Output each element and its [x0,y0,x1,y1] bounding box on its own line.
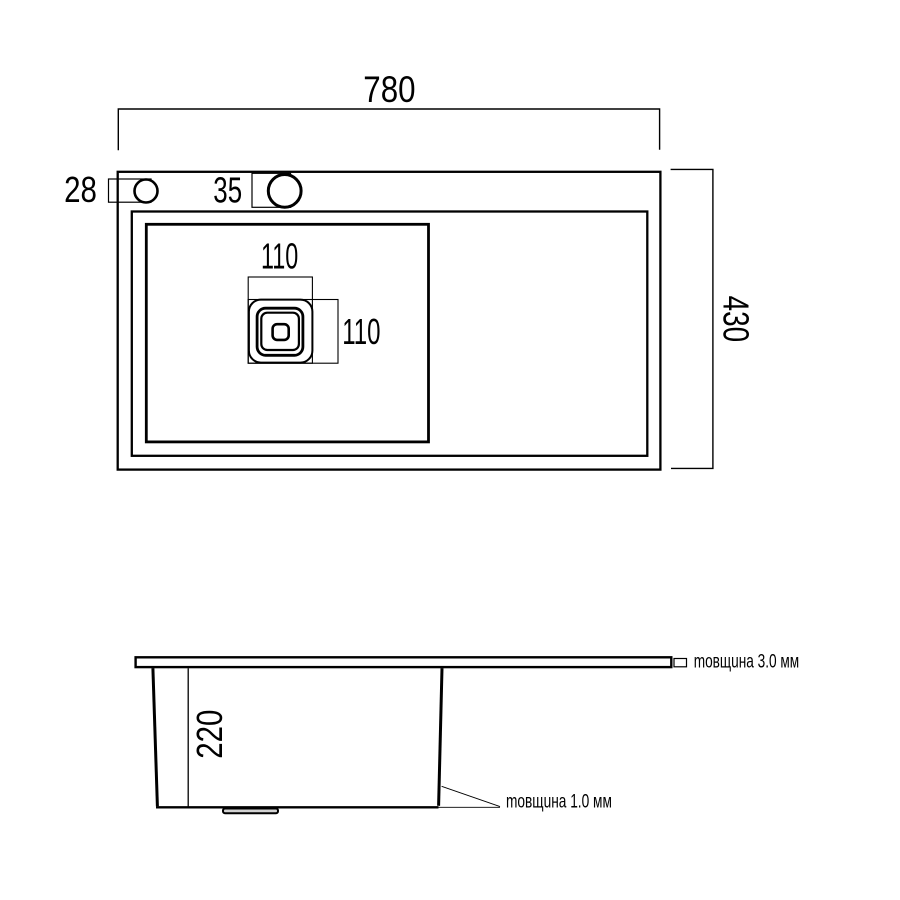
svg-text:35: 35 [213,171,242,211]
svg-text:mовщuна 3.0 мм: mовщuна 3.0 мм [694,650,799,672]
svg-text:780: 780 [363,69,415,110]
svg-text:110: 110 [261,237,298,276]
svg-text:110: 110 [342,312,380,352]
svg-text:430: 430 [716,296,756,342]
svg-text:mовщuна 1.0 мм: mовщuна 1.0 мм [506,790,612,812]
svg-text:220: 220 [189,710,230,759]
svg-text:28: 28 [64,169,97,209]
